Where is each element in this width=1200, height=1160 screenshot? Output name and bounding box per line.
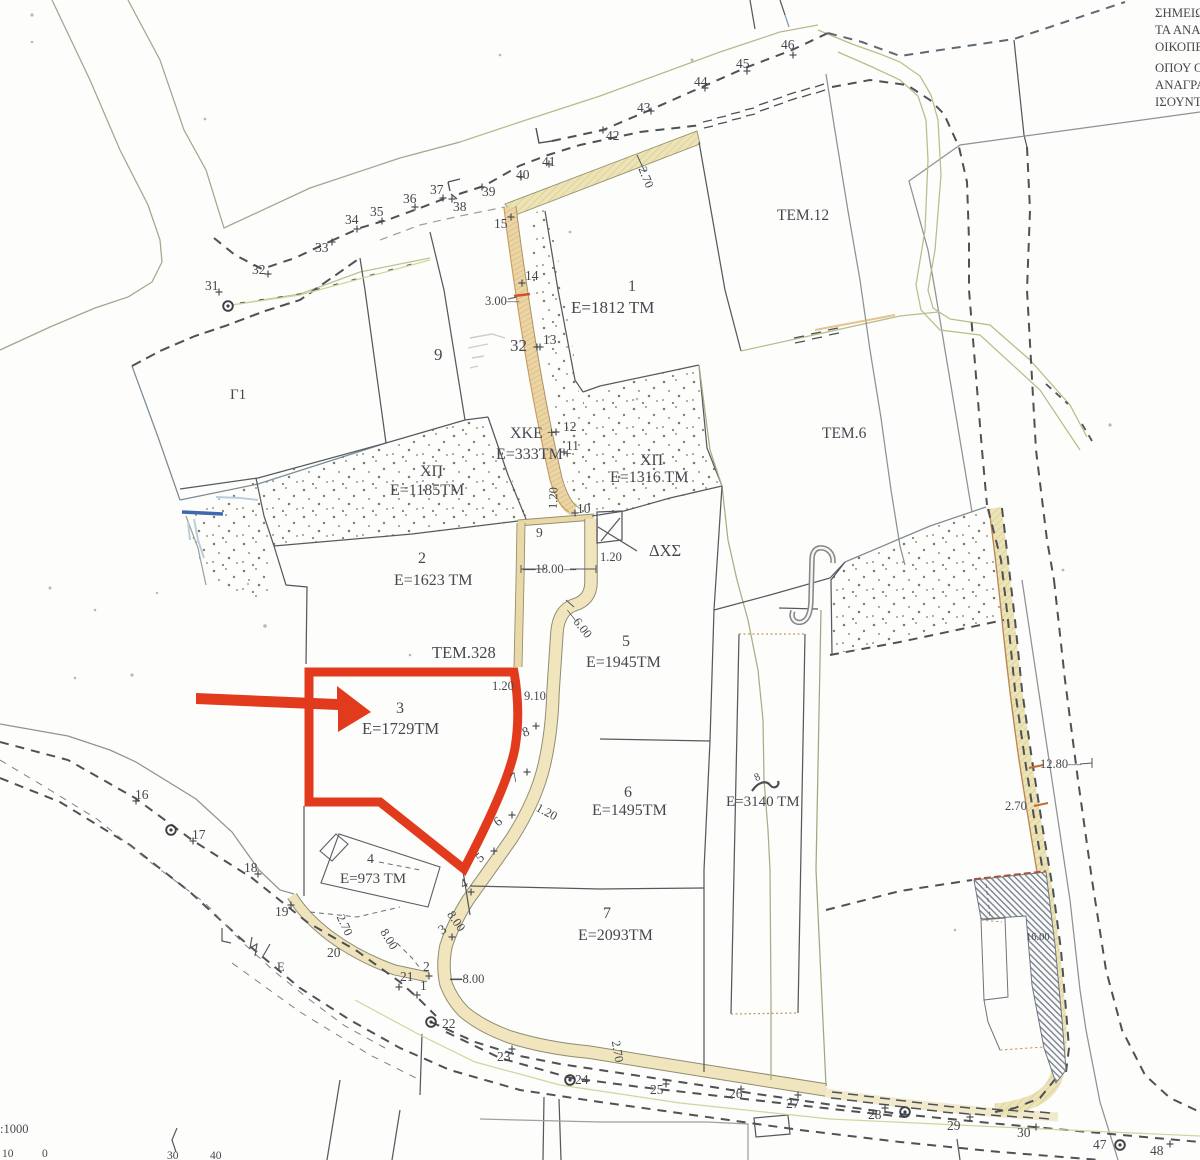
svg-text:ΧΚΕ +: ΧΚΕ + (510, 425, 556, 442)
svg-text:10: 10 (2, 1148, 14, 1160)
svg-text:12: 12 (563, 419, 577, 434)
svg-text:Ε=1812 ΤΜ: Ε=1812 ΤΜ (571, 298, 654, 317)
svg-text:35: 35 (370, 204, 384, 219)
svg-text:ΤΕΜ.328: ΤΕΜ.328 (432, 643, 496, 662)
svg-text:4: 4 (367, 852, 374, 867)
svg-text:ΣΗΜΕΙΩ: ΣΗΜΕΙΩ (1155, 6, 1200, 20)
svg-text:3.00—: 3.00— (485, 294, 520, 308)
svg-text:29: 29 (947, 1118, 961, 1133)
svg-text:48: 48 (1150, 1143, 1164, 1158)
svg-text:37: 37 (430, 182, 444, 197)
svg-text:30: 30 (167, 1150, 179, 1160)
svg-text:16.00: 16.00 (1026, 932, 1050, 943)
svg-text:ΟΙΚΟΠΕ: ΟΙΚΟΠΕ (1155, 40, 1200, 54)
svg-text:32: 32 (252, 262, 266, 277)
svg-text:47: 47 (1093, 1137, 1107, 1152)
svg-text:9.10: 9.10 (524, 689, 546, 703)
svg-text:0: 0 (42, 1148, 48, 1160)
svg-text:26: 26 (729, 1086, 743, 1101)
svg-text:ΧΠ: ΧΠ (420, 463, 444, 480)
svg-text:1.20: 1.20 (492, 679, 514, 693)
svg-text:38: 38 (453, 199, 467, 214)
svg-text:Ε=1316 ΤΜ: Ε=1316 ΤΜ (610, 469, 689, 486)
svg-text:17: 17 (192, 827, 206, 842)
svg-text::1000: :1000 (0, 1122, 28, 1136)
svg-text:7: 7 (603, 905, 611, 922)
svg-text:42: 42 (606, 128, 620, 143)
svg-text:28: 28 (868, 1107, 882, 1122)
svg-text:Ε=3140 ΤΜ: Ε=3140 ΤΜ (726, 794, 800, 810)
svg-text:ΤΑ ΑΝΑΓ: ΤΑ ΑΝΑΓ (1155, 23, 1200, 37)
svg-text:—8.00: —8.00 (449, 972, 484, 986)
svg-text:15: 15 (494, 216, 508, 231)
svg-text:40: 40 (516, 167, 530, 182)
svg-text:ΟΠΟΥ ΟΙ: ΟΠΟΥ ΟΙ (1155, 61, 1200, 75)
svg-text:19: 19 (275, 904, 289, 919)
svg-text:45: 45 (736, 56, 750, 71)
svg-text:40: 40 (210, 1150, 222, 1160)
svg-text:25: 25 (650, 1082, 664, 1097)
svg-text:Ε=1729ΤΜ: Ε=1729ΤΜ (362, 719, 439, 738)
svg-text:Γ1: Γ1 (230, 387, 246, 403)
svg-text:39: 39 (482, 184, 496, 199)
svg-text:46: 46 (781, 37, 795, 52)
svg-text:Ε=333ΤΜ+: Ε=333ΤΜ+ (496, 446, 572, 463)
svg-text:12.80—: 12.80— (1040, 757, 1081, 771)
svg-text:2: 2 (418, 550, 426, 567)
svg-text:10: 10 (577, 501, 591, 516)
svg-text:32: 32 (510, 336, 527, 355)
svg-text:Ε: Ε (277, 960, 285, 974)
svg-text:Ε=973 ΤΜ: Ε=973 ΤΜ (340, 871, 406, 887)
svg-text:41: 41 (542, 154, 556, 169)
svg-text:ΧΠ: ΧΠ (640, 452, 664, 469)
svg-text:6: 6 (624, 784, 632, 801)
svg-text:ΔΧΣ: ΔΧΣ (649, 541, 681, 560)
svg-text:Ε=1495ΤΜ: Ε=1495ΤΜ (592, 802, 667, 819)
svg-text:ΙΣΟΥΝΤΑ: ΙΣΟΥΝΤΑ (1155, 95, 1200, 109)
svg-text:ΤΕΜ.6: ΤΕΜ.6 (822, 425, 867, 442)
svg-text:1.20: 1.20 (546, 487, 561, 509)
svg-text:Ε=1185ΤΜ: Ε=1185ΤΜ (390, 482, 464, 499)
svg-text:18: 18 (244, 860, 258, 875)
svg-text:16: 16 (135, 787, 149, 802)
svg-text:Ε=2093ΤΜ: Ε=2093ΤΜ (578, 927, 653, 944)
svg-text:44: 44 (694, 74, 708, 89)
svg-text:—18.00—: —18.00— (522, 562, 577, 576)
svg-text:2.70: 2.70 (1005, 799, 1027, 813)
svg-text:22: 22 (442, 1016, 456, 1031)
svg-text:33: 33 (315, 240, 329, 255)
svg-text:Ε=1945ΤΜ: Ε=1945ΤΜ (586, 654, 661, 671)
svg-text:27: 27 (786, 1096, 800, 1111)
svg-text:36: 36 (403, 191, 417, 206)
svg-text:5: 5 (622, 633, 630, 650)
svg-text:9: 9 (434, 345, 443, 364)
svg-text:43: 43 (637, 100, 651, 115)
svg-text:ΑΝΑΓΡΑΦ: ΑΝΑΓΡΑΦ (1155, 78, 1200, 92)
svg-text:31: 31 (205, 278, 219, 293)
svg-text:30: 30 (1017, 1125, 1031, 1140)
svg-text:ΤΕΜ.12: ΤΕΜ.12 (777, 207, 829, 224)
svg-text:9: 9 (536, 525, 543, 540)
svg-text:3: 3 (396, 700, 404, 717)
svg-text:34: 34 (345, 212, 359, 227)
svg-text:23: 23 (497, 1049, 511, 1064)
svg-text:1.20: 1.20 (600, 550, 622, 564)
svg-text:Ε=1623 ΤΜ: Ε=1623 ΤΜ (394, 572, 473, 589)
svg-text:1: 1 (628, 278, 636, 295)
svg-text:21: 21 (400, 969, 414, 984)
svg-text:2: 2 (423, 959, 430, 974)
svg-text:24: 24 (575, 1072, 589, 1087)
svg-text:1: 1 (420, 978, 427, 993)
svg-text:13: 13 (543, 332, 557, 347)
svg-text:20: 20 (327, 945, 341, 960)
svg-text:14: 14 (525, 268, 539, 283)
